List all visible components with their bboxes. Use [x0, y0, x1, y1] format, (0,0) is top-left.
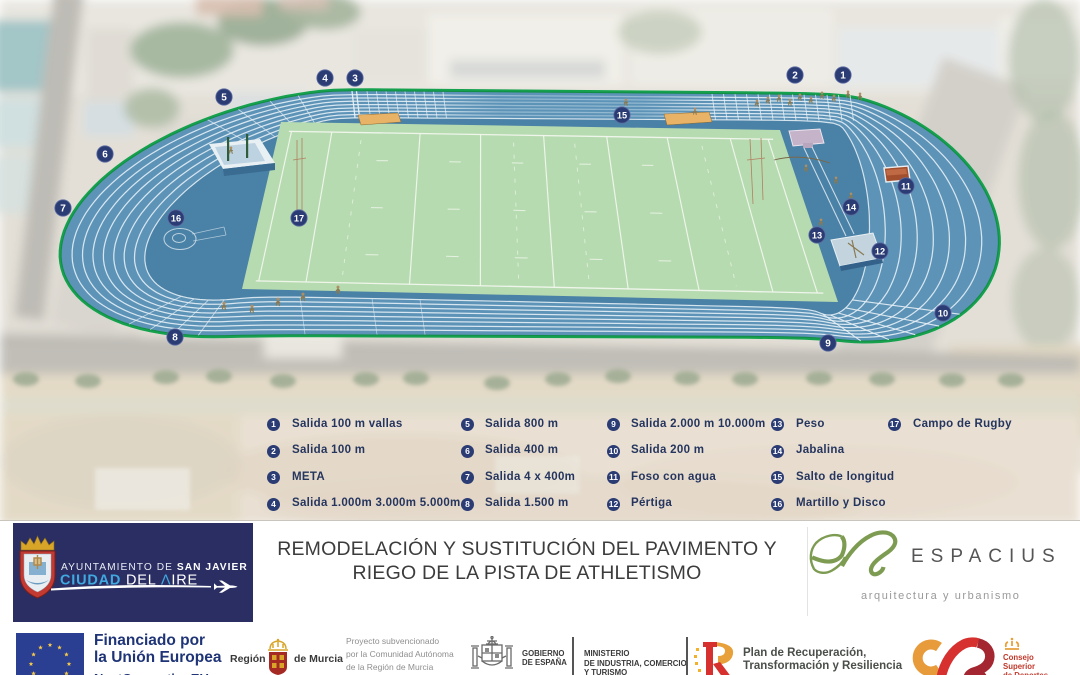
- svg-text:9: 9: [825, 338, 831, 349]
- svg-text:12: 12: [875, 246, 885, 256]
- svg-text:11: 11: [901, 181, 911, 191]
- svg-text:1: 1: [840, 70, 846, 81]
- svg-text:5: 5: [221, 92, 227, 103]
- svg-text:15: 15: [617, 110, 627, 120]
- svg-text:4: 4: [322, 73, 328, 84]
- svg-text:7: 7: [60, 203, 66, 214]
- svg-text:8: 8: [172, 332, 178, 343]
- svg-text:13: 13: [812, 230, 822, 240]
- svg-text:14: 14: [846, 202, 857, 212]
- svg-text:2: 2: [792, 70, 798, 81]
- svg-text:3: 3: [352, 73, 358, 84]
- svg-text:17: 17: [294, 213, 304, 223]
- svg-text:AYUNTAMIENTO DE SAN JAVIER: AYUNTAMIENTO DE SAN JAVIER: [61, 562, 248, 573]
- svg-text:10: 10: [938, 308, 948, 318]
- svg-text:16: 16: [171, 213, 181, 223]
- svg-text:6: 6: [102, 149, 108, 160]
